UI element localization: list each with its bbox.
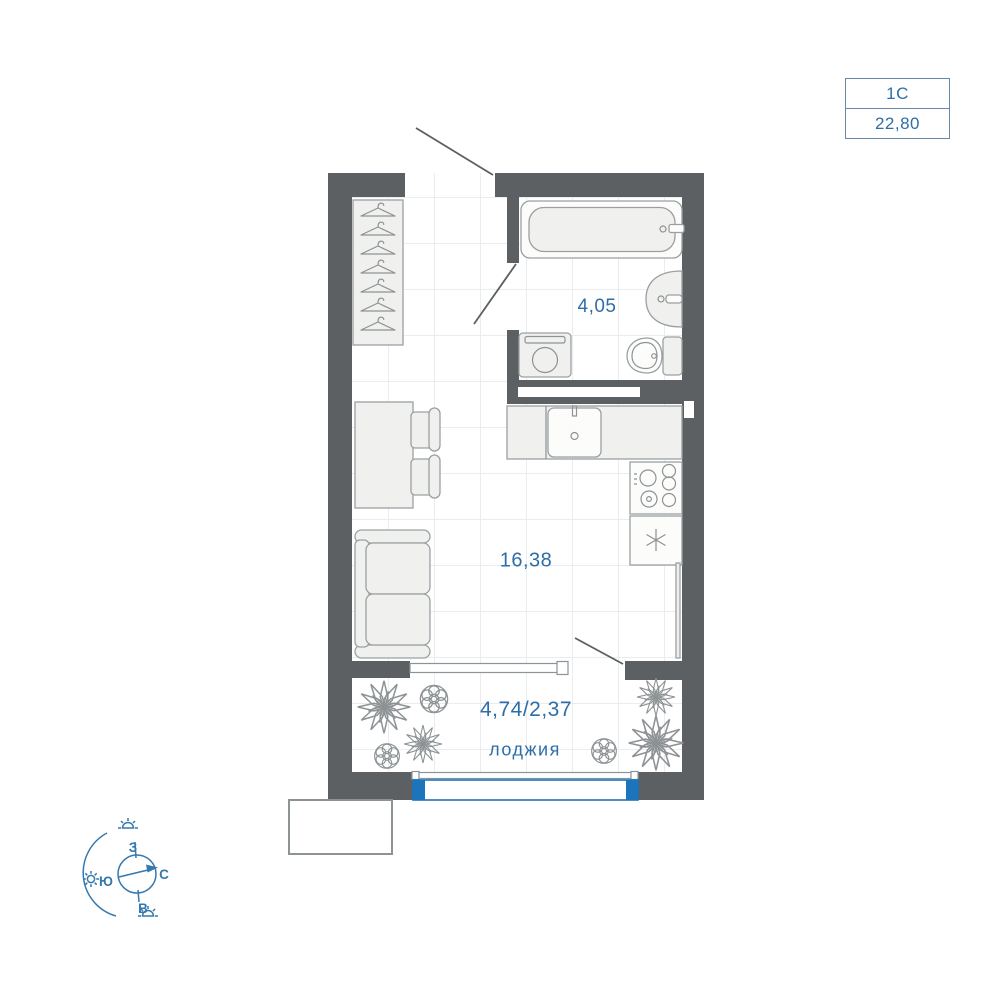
sun-path-arc xyxy=(83,833,116,916)
plan-info-badge: 1С 22,80 xyxy=(845,78,950,139)
sun-icon xyxy=(83,871,99,887)
bathroom-area-label: 4,05 xyxy=(578,296,617,318)
plan-type-label: 1С xyxy=(846,79,949,109)
sun-icon xyxy=(118,818,138,828)
adjacent-structure-outline xyxy=(288,799,393,855)
wall-room-loggia-right xyxy=(625,661,704,680)
entrance-door-swing xyxy=(416,128,493,175)
wall-loggia-bottom-right xyxy=(638,772,704,800)
loggia-name-label: лоджия xyxy=(489,740,561,761)
compass-south-label: Ю xyxy=(99,874,113,889)
sun-icon xyxy=(138,906,158,916)
wall-left xyxy=(328,173,352,800)
compass-rose: З С Ю В xyxy=(83,818,169,916)
loggia-area-label: 4,74/2,37 xyxy=(480,698,572,722)
vent-shaft-right-wall xyxy=(684,401,694,418)
vent-shaft-bathroom-wall xyxy=(518,387,640,397)
floor-plan-page: 1С 22,80 xyxy=(0,0,1000,1000)
wall-room-loggia-left xyxy=(328,661,410,678)
compass-north-label: С xyxy=(159,867,169,882)
wall-top-right xyxy=(495,173,704,197)
wall-loggia-bottom-left xyxy=(328,772,413,800)
compass-arrow-head xyxy=(146,865,158,873)
main-room-area-label: 16,38 xyxy=(500,550,553,573)
wall-bathroom-left-upper xyxy=(507,197,519,263)
wall-right xyxy=(682,173,704,800)
compass-east-label: В xyxy=(138,901,148,916)
compass-west-label: З xyxy=(129,840,137,855)
plan-area-label: 22,80 xyxy=(846,109,949,138)
